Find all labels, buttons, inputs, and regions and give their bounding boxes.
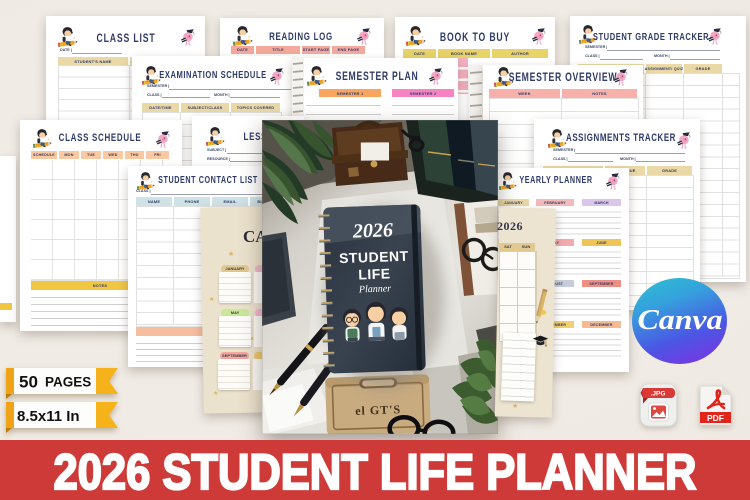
- svg-text:8.5x11 In: 8.5x11 In: [17, 408, 80, 425]
- svg-text:PDF: PDF: [707, 413, 724, 423]
- svg-text:2026: 2026: [352, 219, 394, 242]
- svg-text:Planner: Planner: [358, 283, 392, 295]
- svg-text:el GT'S: el GT'S: [355, 402, 401, 418]
- svg-text:LIFE: LIFE: [358, 265, 391, 282]
- svg-text:PAGES: PAGES: [45, 375, 91, 390]
- svg-text:.JPG: .JPG: [651, 391, 666, 398]
- svg-text:50: 50: [19, 373, 38, 392]
- svg-text:STUDENT: STUDENT: [339, 248, 409, 266]
